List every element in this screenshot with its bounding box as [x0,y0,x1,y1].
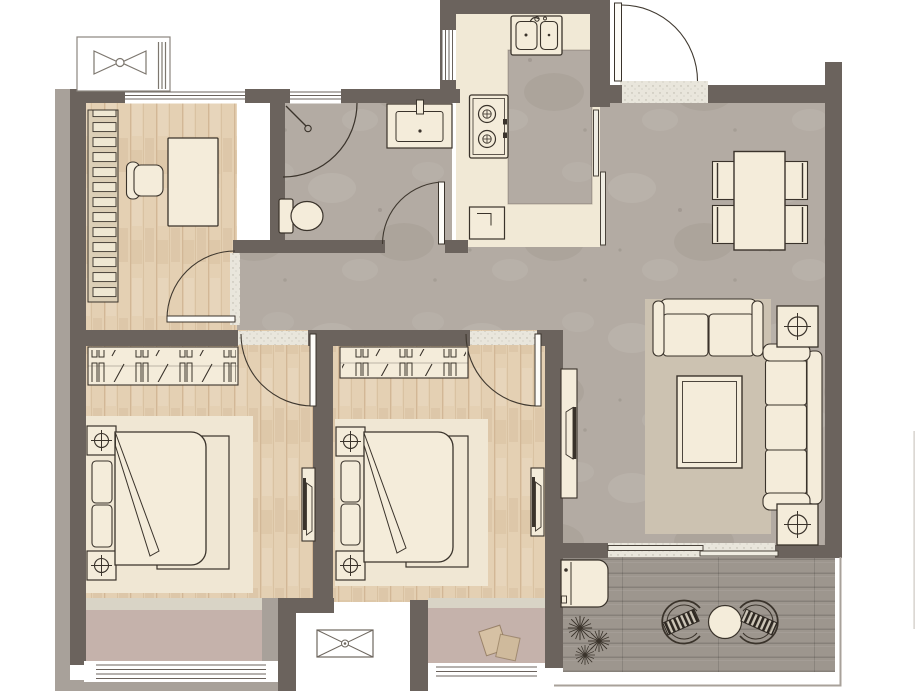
tv-console-living [561,369,577,498]
ac-platform-north [77,37,170,91]
toilet [279,199,323,233]
side-table-plant [777,306,818,347]
double-sink [511,16,562,55]
site-boundary-line [914,431,915,629]
dining-chair [784,206,808,244]
desk [168,138,218,226]
tv-console-bedroom-2 [531,468,544,536]
nightstand [336,427,365,456]
dining-table [734,152,785,251]
pillow [92,505,112,547]
wardrobe [88,347,238,385]
dining-chair [713,162,737,200]
coffee-table [677,376,742,468]
loveseat [653,299,763,356]
bathroom-window [290,89,341,104]
tv-icon [532,477,535,527]
bedroom-1-threshold [238,331,308,345]
corridor-floor [233,240,600,330]
tv-console-bedroom-1 [302,468,315,541]
base-appliance [470,207,505,239]
tv-icon [573,407,576,459]
side-table-plant [777,504,818,545]
bay-threshold-1 [86,598,278,611]
bedroom-1-bay-window [84,661,278,682]
bedroom-2-bay-window [428,663,545,683]
nightstand [87,551,116,580]
bay-threshold-2 [428,598,545,609]
dining-chair [713,206,737,244]
nightstand [336,551,365,580]
desk-chair [127,162,164,199]
nightstand [87,426,116,455]
pillow [341,461,360,502]
dining-chair [784,162,808,200]
study-threshold [230,253,240,325]
bedroom-2-threshold [470,331,537,345]
floor-plan-drawing [0,0,920,691]
pillow [341,504,360,545]
entry-doormat [620,81,708,103]
vanity-sink [387,100,452,148]
washing-machine [561,560,608,607]
floor-plan-page [0,0,920,691]
pillow [92,461,112,503]
bay-window-bedroom-1 [86,610,278,663]
sofa [763,344,822,510]
gas-stove [470,95,509,158]
kitchen-window [443,30,457,80]
entry-door [615,3,698,81]
ac-platform-south-unit [317,630,373,657]
kitchen-walkway [508,50,592,204]
wardrobe [340,347,468,378]
tv-icon [303,478,306,530]
round-table [709,606,742,639]
ac-outdoor-unit-icon [317,630,373,657]
bookshelf [88,110,118,302]
